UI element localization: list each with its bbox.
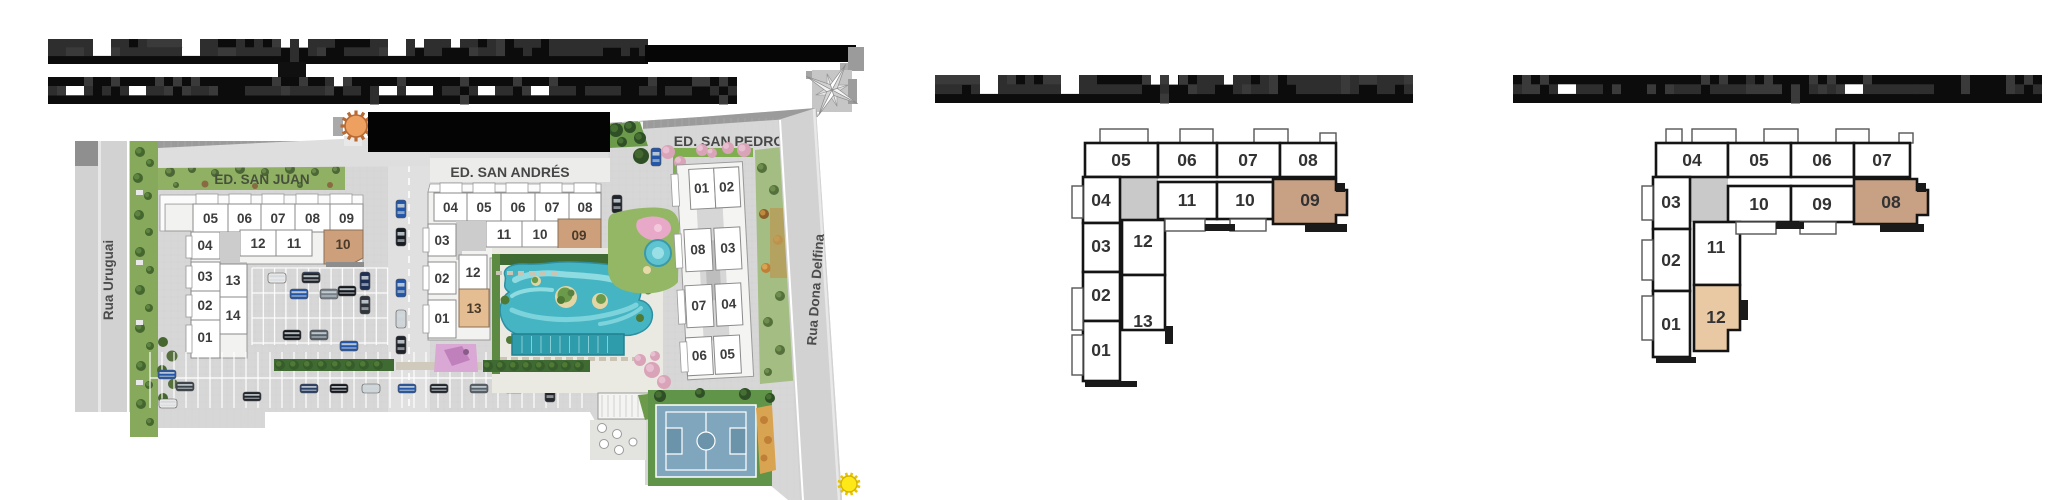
svg-text:13: 13 — [225, 273, 241, 288]
svg-text:10: 10 — [1749, 194, 1769, 214]
svg-text:01: 01 — [1661, 314, 1681, 334]
svg-text:02: 02 — [197, 298, 212, 313]
svg-text:01: 01 — [694, 180, 710, 196]
svg-text:13: 13 — [1133, 311, 1153, 331]
svg-text:13: 13 — [466, 301, 482, 316]
svg-text:06: 06 — [1812, 150, 1832, 170]
svg-text:06: 06 — [237, 211, 253, 226]
svg-text:06: 06 — [692, 348, 708, 364]
svg-text:05: 05 — [1111, 150, 1131, 170]
svg-text:02: 02 — [1661, 250, 1681, 270]
svg-text:02: 02 — [1091, 285, 1111, 305]
svg-text:Rua Uruguai: Rua Uruguai — [101, 240, 116, 320]
svg-text:07: 07 — [691, 298, 707, 314]
svg-text:08: 08 — [1881, 192, 1901, 212]
svg-text:01: 01 — [434, 311, 450, 326]
svg-text:03: 03 — [1091, 236, 1111, 256]
svg-text:ED. SAN JUAN: ED. SAN JUAN — [214, 172, 309, 187]
svg-text:09: 09 — [339, 211, 354, 226]
svg-text:04: 04 — [1682, 150, 1702, 170]
svg-text:09: 09 — [571, 228, 586, 243]
svg-text:10: 10 — [532, 227, 547, 242]
svg-text:07: 07 — [544, 200, 559, 215]
svg-text:14: 14 — [225, 308, 241, 323]
svg-text:05: 05 — [203, 211, 219, 226]
svg-text:03: 03 — [720, 240, 736, 256]
svg-text:09: 09 — [1812, 194, 1832, 214]
svg-text:04: 04 — [721, 296, 737, 312]
svg-text:01: 01 — [197, 330, 213, 345]
svg-text:12: 12 — [465, 265, 480, 280]
svg-text:12: 12 — [250, 236, 265, 251]
svg-text:04: 04 — [1091, 190, 1111, 210]
svg-text:03: 03 — [197, 269, 213, 284]
svg-text:11: 11 — [287, 236, 302, 251]
svg-text:07: 07 — [1238, 150, 1257, 170]
svg-text:05: 05 — [476, 200, 492, 215]
svg-text:06: 06 — [1177, 150, 1197, 170]
svg-text:03: 03 — [434, 233, 450, 248]
svg-text:ED. SAN ANDRÉS: ED. SAN ANDRÉS — [450, 164, 569, 180]
svg-text:08: 08 — [577, 200, 593, 215]
svg-text:09: 09 — [1300, 190, 1320, 210]
svg-text:07: 07 — [270, 211, 285, 226]
svg-text:08: 08 — [1298, 150, 1318, 170]
svg-text:05: 05 — [1749, 150, 1769, 170]
svg-text:11: 11 — [497, 227, 512, 242]
svg-text:08: 08 — [690, 242, 706, 258]
svg-text:12: 12 — [1706, 307, 1726, 327]
svg-text:11: 11 — [1707, 237, 1726, 257]
svg-text:11: 11 — [1178, 190, 1197, 210]
svg-text:06: 06 — [510, 200, 526, 215]
svg-text:12: 12 — [1133, 231, 1153, 251]
svg-text:02: 02 — [434, 271, 449, 286]
svg-text:10: 10 — [335, 237, 350, 252]
svg-text:10: 10 — [1235, 190, 1255, 210]
svg-text:08: 08 — [305, 211, 321, 226]
svg-text:04: 04 — [197, 238, 213, 253]
svg-text:02: 02 — [719, 179, 735, 195]
svg-text:01: 01 — [1091, 340, 1111, 360]
svg-text:07: 07 — [1872, 150, 1891, 170]
svg-text:05: 05 — [720, 346, 736, 362]
svg-text:03: 03 — [1661, 192, 1681, 212]
svg-text:04: 04 — [443, 200, 459, 215]
